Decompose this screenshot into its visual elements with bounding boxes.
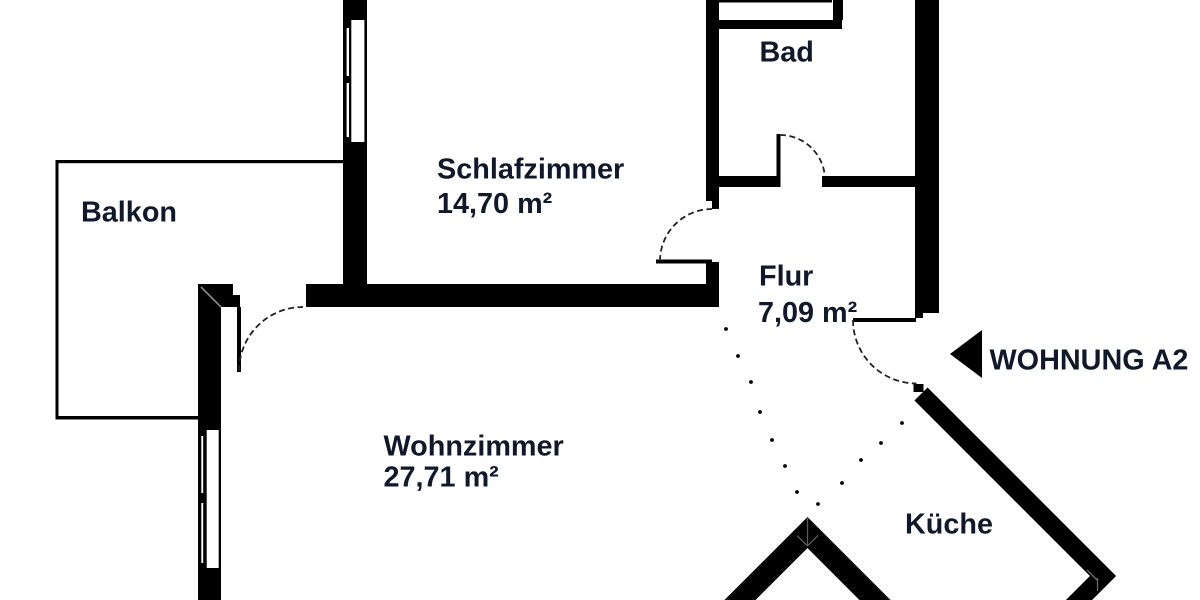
svg-text:Balkon: Balkon <box>81 197 177 229</box>
svg-text:WOHNUNG A2: WOHNUNG A2 <box>990 345 1189 377</box>
svg-text:27,71 m²: 27,71 m² <box>384 462 499 494</box>
svg-text:Bad: Bad <box>760 37 814 69</box>
svg-text:14,70 m²: 14,70 m² <box>437 188 552 220</box>
svg-text:Wohnzimmer: Wohnzimmer <box>384 430 564 462</box>
svg-text:Küche: Küche <box>905 509 993 541</box>
svg-text:Schlafzimmer: Schlafzimmer <box>437 154 624 186</box>
svg-text:Flur: Flur <box>759 261 813 293</box>
svg-text:7,09 m²: 7,09 m² <box>758 297 857 329</box>
